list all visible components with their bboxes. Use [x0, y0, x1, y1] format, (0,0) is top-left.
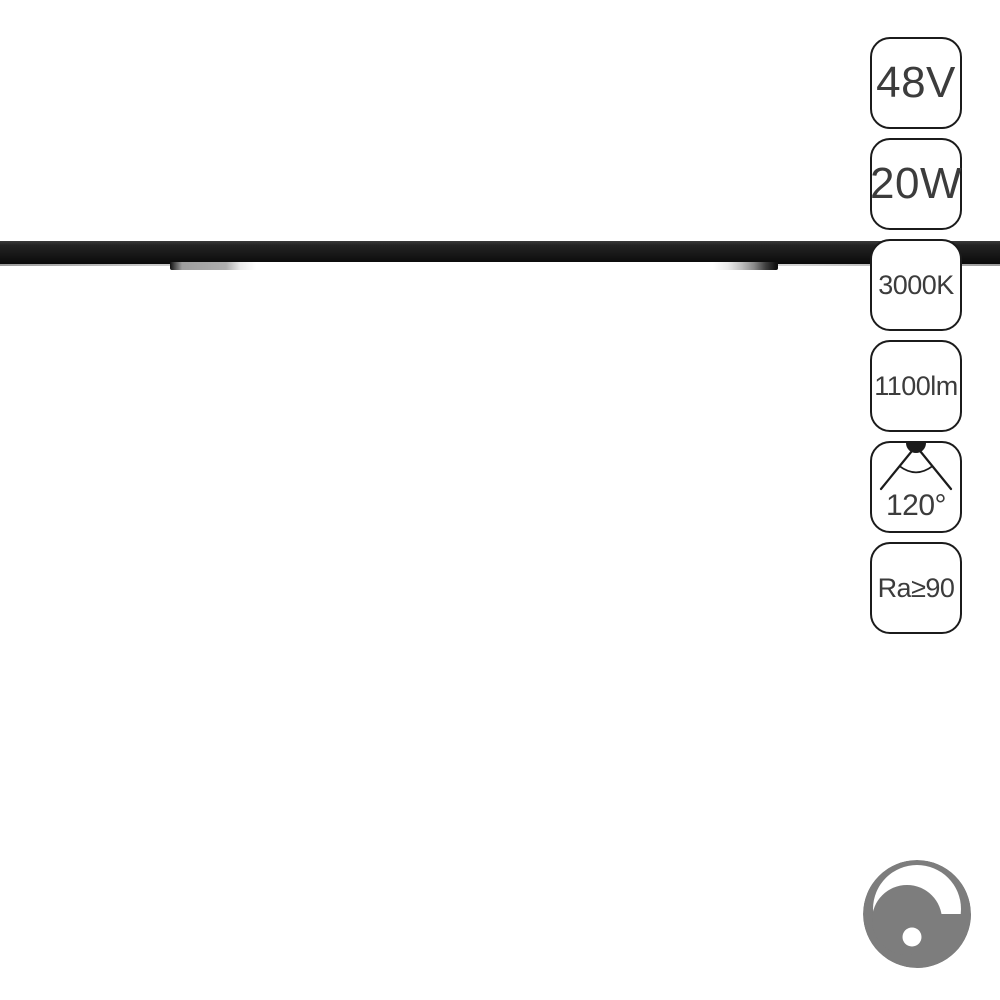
dimmable-feature: [862, 859, 972, 969]
spec-badge-voltage: 48V: [870, 37, 962, 129]
spec-badge-column: 48V 20W 3000K 1100lm 120° Ra≥90: [870, 37, 962, 634]
dimmer-knob-icon: [862, 859, 972, 969]
cri-label: Ra≥90: [878, 573, 955, 604]
spec-badge-cri: Ra≥90: [870, 542, 962, 634]
power-label: 20W: [870, 159, 962, 209]
luminous-flux-label: 1100lm: [874, 371, 958, 402]
spec-badge-power: 20W: [870, 138, 962, 230]
spec-badge-luminous-flux: 1100lm: [870, 340, 962, 432]
product-image: 48V 20W 3000K 1100lm 120° Ra≥90: [0, 0, 1000, 1000]
magnetic-track-light: [0, 241, 1000, 266]
spec-badge-color-temperature: 3000K: [870, 239, 962, 331]
beam-angle-label: 120°: [872, 489, 960, 523]
color-temperature-label: 3000K: [878, 270, 954, 301]
voltage-label: 48V: [876, 58, 956, 108]
led-diffuser-strip: [170, 262, 778, 270]
spec-badge-beam-angle: 120°: [870, 441, 962, 533]
